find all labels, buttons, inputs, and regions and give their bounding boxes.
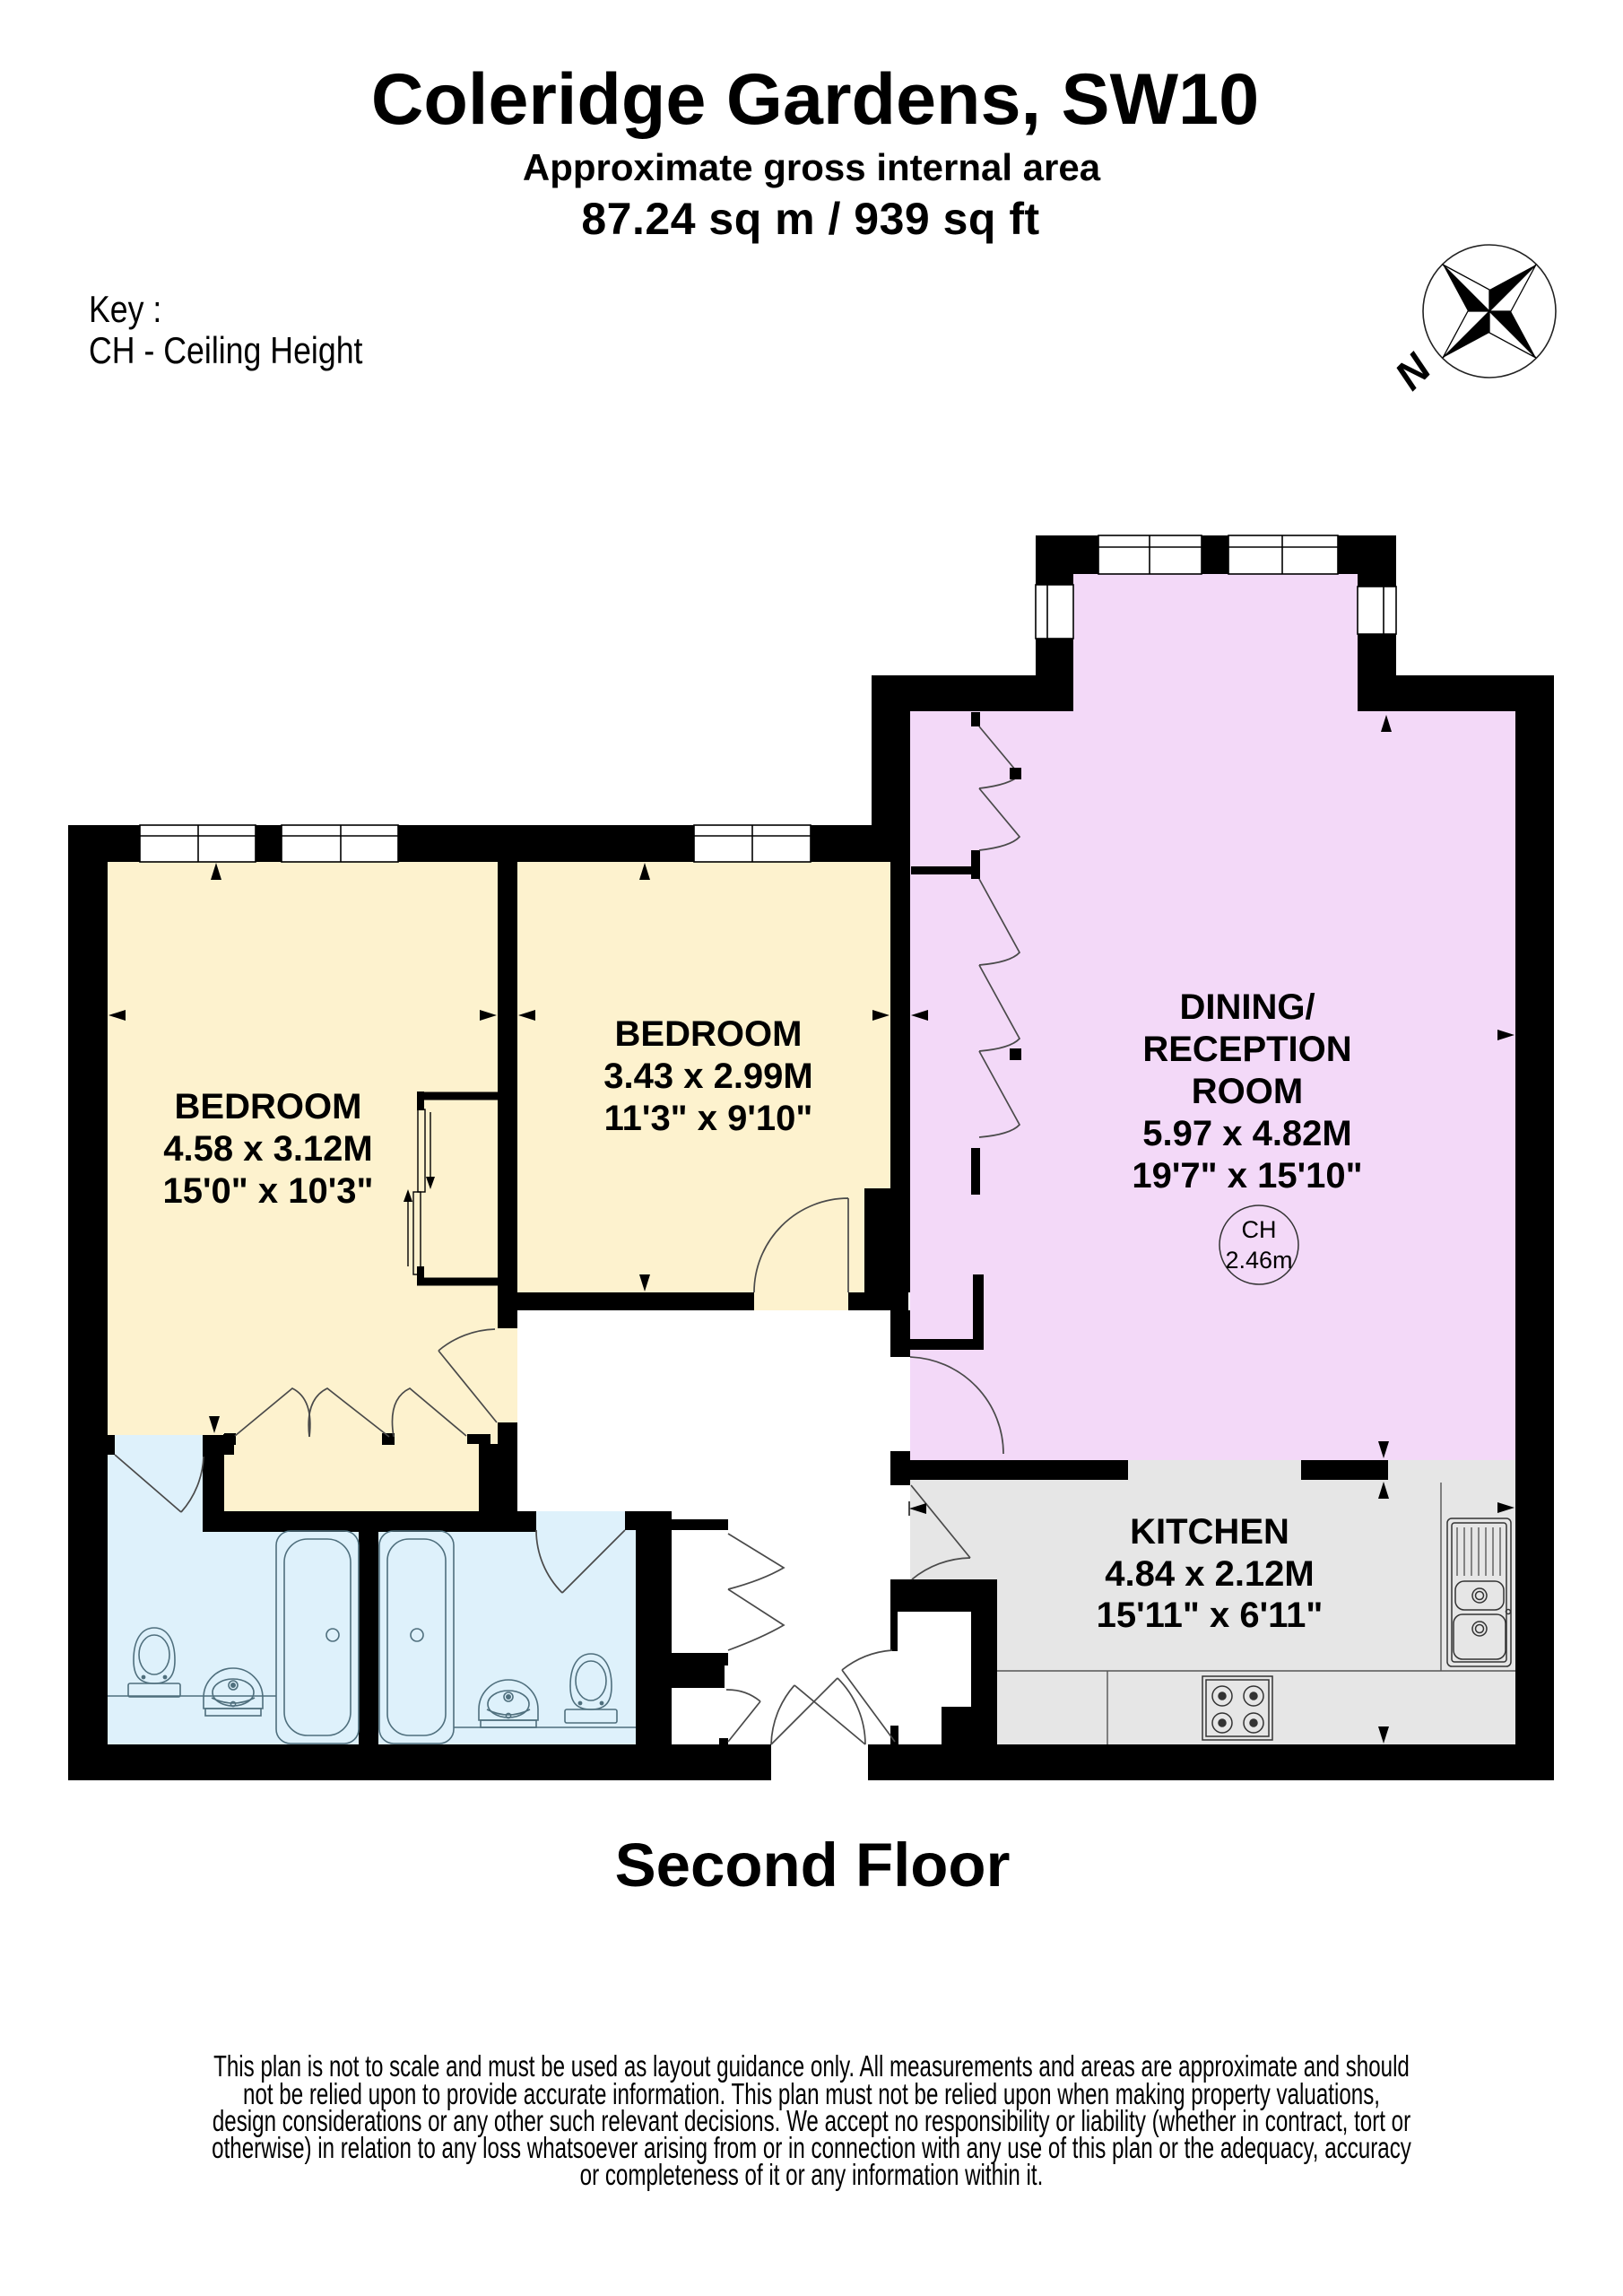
svg-text:CH - Ceiling Height: CH - Ceiling Height [89, 330, 363, 371]
svg-text:5.97 x 4.82M: 5.97 x 4.82M [1142, 1114, 1352, 1153]
svg-text:Second Floor: Second Floor [615, 1831, 1011, 1900]
svg-text:BEDROOM: BEDROOM [175, 1087, 362, 1126]
svg-text:19'7" x 15'10": 19'7" x 15'10" [1132, 1156, 1362, 1196]
svg-text:or completeness of it or any i: or completeness of it or any information… [580, 2159, 1044, 2192]
svg-text:11'3" x 9'10": 11'3" x 9'10" [604, 1099, 813, 1138]
svg-text:KITCHEN: KITCHEN [1130, 1512, 1289, 1552]
svg-text:4.84 x 2.12M: 4.84 x 2.12M [1105, 1554, 1315, 1594]
svg-text:Approximate gross internal are: Approximate gross internal area [523, 146, 1101, 188]
svg-text:2.46m: 2.46m [1225, 1247, 1292, 1274]
svg-text:4.58 x 3.12M: 4.58 x 3.12M [163, 1129, 373, 1169]
svg-text:BEDROOM: BEDROOM [615, 1014, 803, 1054]
svg-text:RECEPTION: RECEPTION [1142, 1030, 1351, 1069]
svg-text:DINING/: DINING/ [1179, 987, 1315, 1027]
svg-text:CH: CH [1242, 1216, 1277, 1243]
svg-text:Coleridge Gardens, SW10: Coleridge Gardens, SW10 [371, 59, 1259, 140]
svg-text:3.43 x 2.99M: 3.43 x 2.99M [603, 1057, 813, 1096]
svg-text:15'11" x 6'11": 15'11" x 6'11" [1097, 1596, 1324, 1635]
svg-text:ROOM: ROOM [1192, 1072, 1303, 1111]
svg-text:87.24 sq m / 939 sq ft: 87.24 sq m / 939 sq ft [581, 194, 1039, 244]
svg-text:15'0" x 10'3": 15'0" x 10'3" [163, 1171, 374, 1211]
svg-text:Key :: Key : [89, 289, 161, 330]
